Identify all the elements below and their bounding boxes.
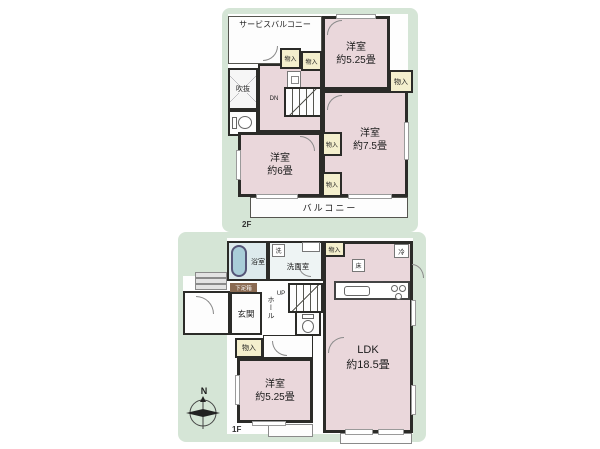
floor-label-2f: 2F xyxy=(242,220,251,229)
toilet-tank-icon xyxy=(232,117,237,129)
closet-label: 物入 xyxy=(326,140,338,149)
room-1f-bedroom-525 xyxy=(237,358,313,423)
closet-label: 物入 xyxy=(284,54,296,63)
hall-text: ホール xyxy=(265,296,275,320)
window xyxy=(256,194,298,199)
window xyxy=(378,429,404,435)
kitchen-counter xyxy=(334,281,410,300)
balcony-2f xyxy=(250,197,408,218)
entrance xyxy=(230,292,262,335)
compass-north-label: N xyxy=(198,386,210,396)
refrigerator-marker: 冷 xyxy=(394,244,409,258)
closet-1f-south: 物入 xyxy=(235,338,263,358)
window xyxy=(404,122,409,160)
window xyxy=(411,300,416,326)
toilet-tank-icon xyxy=(302,314,314,319)
floor-label-1f: 1F xyxy=(232,425,241,434)
stove-burner xyxy=(395,293,402,300)
window xyxy=(411,385,416,415)
kitchen-sink-icon xyxy=(344,286,370,296)
floor-storage-hatch: 床 xyxy=(352,259,365,272)
toilet-bowl-icon xyxy=(238,116,252,129)
closet-2f-mid-b: 物入 xyxy=(322,172,342,197)
vanity-sink-icon xyxy=(302,242,320,252)
closet-label: 物入 xyxy=(394,77,408,87)
fridge-label: 冷 xyxy=(398,246,405,256)
basin-sink-icon xyxy=(291,76,299,84)
hall-label: ホール xyxy=(265,296,277,336)
closet-2f-mid-a: 物入 xyxy=(322,132,342,156)
stove-burner xyxy=(391,285,398,292)
closet-label: 物入 xyxy=(326,180,338,189)
floor-storage-label: 床 xyxy=(355,261,361,270)
stairs-up-1f xyxy=(288,283,323,313)
void-atrium xyxy=(228,68,258,110)
closet-label: 物入 xyxy=(328,245,340,254)
window xyxy=(252,421,286,426)
stove-icon xyxy=(388,285,408,297)
closet-1f-top: 物入 xyxy=(324,241,345,257)
closet-2f-hall-b: 物入 xyxy=(301,51,322,71)
compass-icon xyxy=(184,396,222,430)
shoe-cabinet: 下足箱 xyxy=(230,283,257,292)
window xyxy=(348,194,392,199)
closet-2f-hall-a: 物入 xyxy=(280,48,301,69)
window xyxy=(236,150,241,180)
stove-burner xyxy=(399,285,406,292)
closet-label: 物入 xyxy=(242,343,256,353)
bathtub-icon xyxy=(231,245,247,277)
toilet-bowl-icon xyxy=(302,320,314,333)
room-ldk xyxy=(323,241,413,433)
washing-machine-icon: 洗 xyxy=(272,244,285,257)
compass: N xyxy=(184,386,222,430)
porch-step xyxy=(195,284,227,290)
closet-label: 物入 xyxy=(305,57,317,66)
window xyxy=(336,14,376,19)
washbasin-2f-icon xyxy=(287,71,301,88)
closet-2f-ne: 物入 xyxy=(389,70,413,93)
shoe-cabinet-label: 下足箱 xyxy=(235,284,252,292)
window xyxy=(345,429,373,435)
floorplan-image: サービスバルコニー 洋室 約5.25畳 物入 吹抜 物入 物入 DN 洋室 約6… xyxy=(0,0,600,449)
washer-label: 洗 xyxy=(275,246,281,255)
hall-extension xyxy=(263,335,313,358)
stairs-down-2f xyxy=(284,87,322,117)
window xyxy=(235,375,240,405)
